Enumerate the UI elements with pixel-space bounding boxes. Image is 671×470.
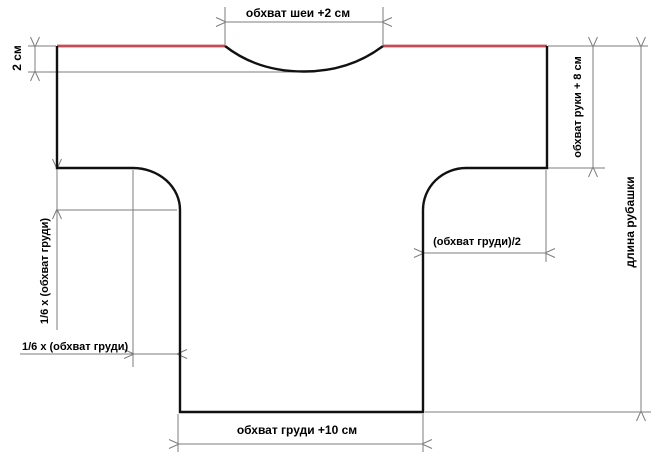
dim-shirt-length: [425, 47, 651, 412]
label-sixth-chest-vertical: 1/6 х (обхват груди): [39, 218, 51, 324]
shirt-pattern-drawing: обхват шеи +2 см 2 см обхват руки + 8 см…: [0, 0, 671, 470]
label-sixth-chest-horizontal: 1/6 x (обхват груди): [22, 341, 128, 353]
dim-half-chest: [424, 170, 546, 262]
dim-sleeve-width: [548, 46, 648, 168]
label-neck: обхват шеи +2 см: [246, 6, 350, 20]
label-sleeve-width: обхват руки + 8 см: [572, 56, 584, 157]
pattern-diagram: обхват шеи +2 см 2 см обхват руки + 8 см…: [0, 0, 671, 470]
label-shirt-length: длина рубашки: [623, 176, 637, 267]
label-half-chest: (обхват груди)/2: [433, 236, 521, 248]
neckline-curve: [225, 46, 383, 72]
shirt-outline: [57, 46, 547, 412]
label-chest-bottom: обхват груди +10 см: [237, 423, 357, 437]
label-hem-allowance: 2 см: [10, 45, 24, 71]
dim-sixth-chest-vertical: [57, 169, 177, 330]
